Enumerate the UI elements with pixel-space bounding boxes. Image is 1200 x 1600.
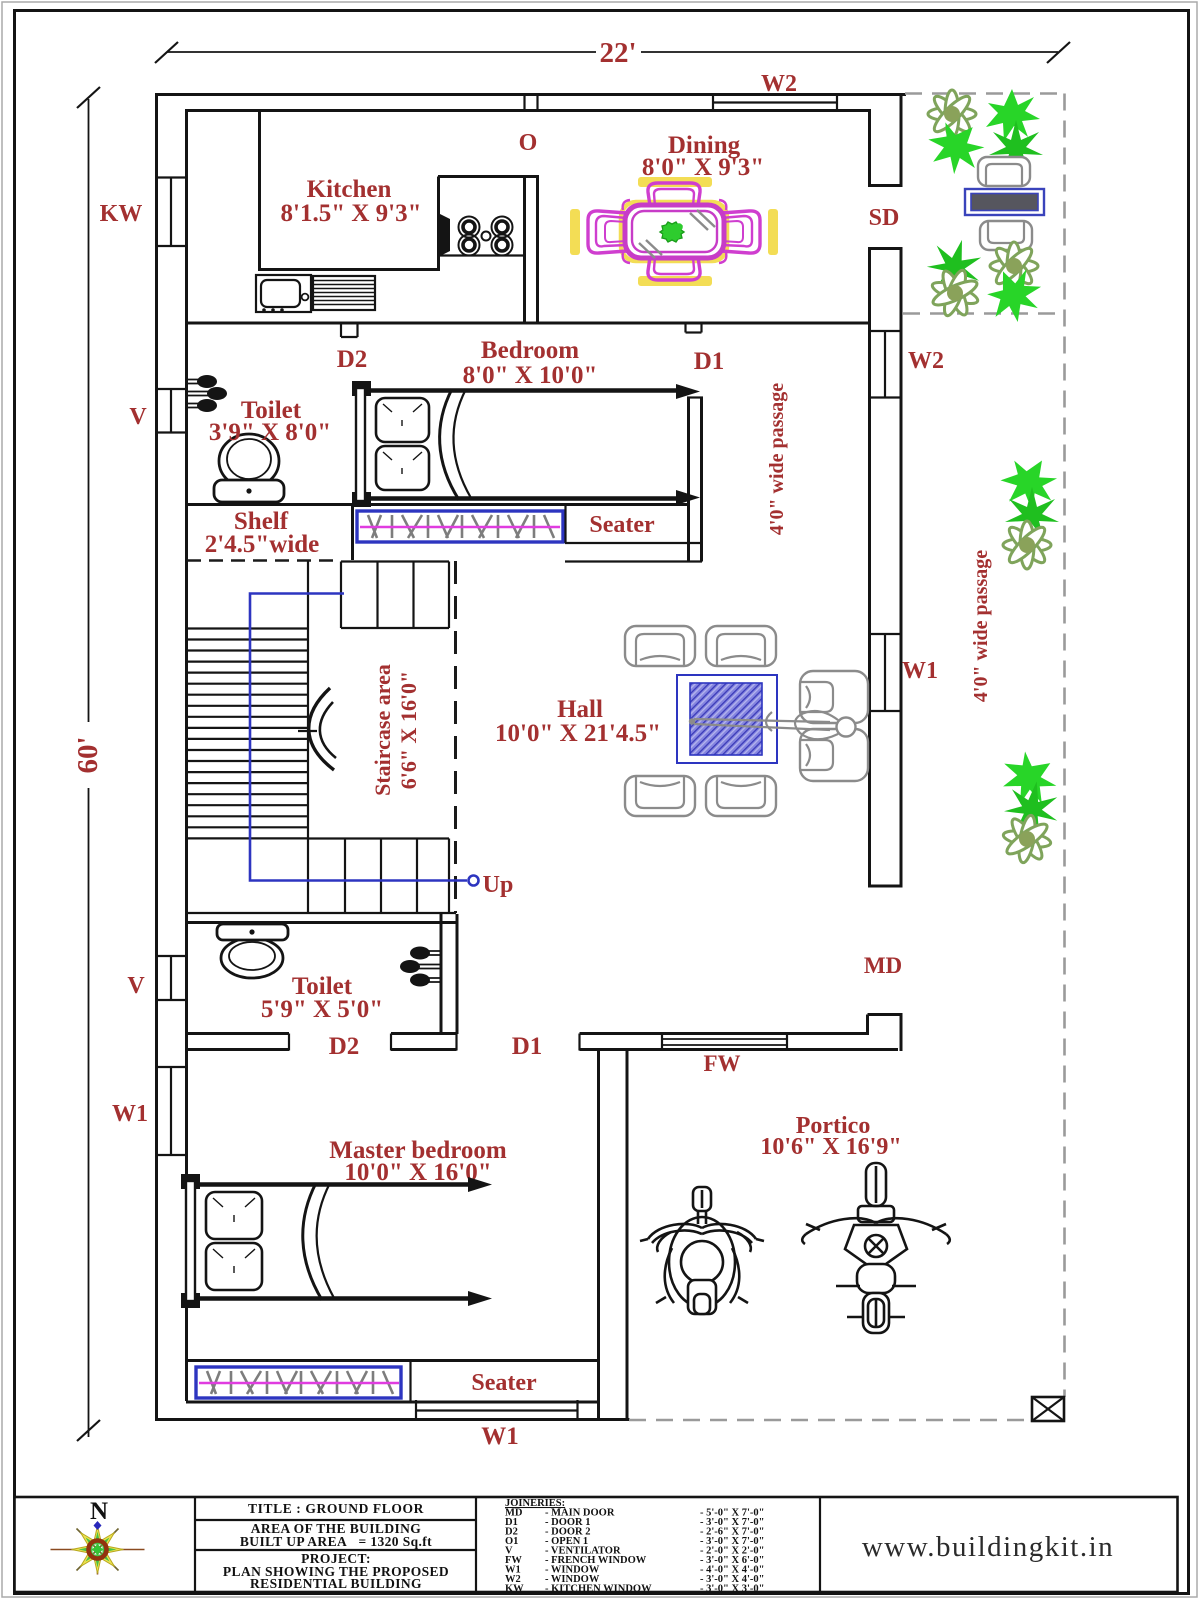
svg-text:W1: W1 [481, 1423, 519, 1450]
svg-text:8'0" X 9'3": 8'0" X 9'3" [642, 154, 764, 181]
svg-text:5'9" X 5'0": 5'9" X 5'0" [261, 996, 383, 1023]
svg-text:4'0" wide passage: 4'0" wide passage [970, 550, 992, 702]
svg-text:8'0" X 10'0": 8'0" X 10'0" [463, 362, 598, 389]
svg-text:Bedroom: Bedroom [481, 337, 579, 364]
svg-text:3'9" X 8'0": 3'9" X 8'0" [209, 419, 331, 446]
svg-text:FW: FW [703, 1051, 740, 1076]
svg-text:D1: D1 [512, 1033, 543, 1060]
svg-text:V: V [127, 973, 145, 999]
svg-text:- 3'-0" X 3'-0": - 3'-0" X 3'-0" [700, 1584, 764, 1595]
svg-text:Seater: Seater [589, 512, 655, 538]
svg-text:8'1.5" X 9'3": 8'1.5" X 9'3" [281, 200, 422, 227]
svg-text:D1: D1 [694, 348, 725, 375]
svg-text:Up: Up [483, 872, 514, 898]
svg-text:RESIDENTIAL BUILDING: RESIDENTIAL BUILDING [250, 1576, 422, 1591]
svg-text:10'0" X 21'4.5": 10'0" X 21'4.5" [495, 720, 661, 747]
svg-text:W1: W1 [112, 1101, 148, 1127]
svg-text:O: O [519, 130, 538, 156]
svg-text:Staircase area: Staircase area [370, 664, 395, 796]
svg-text:W2: W2 [761, 71, 797, 97]
svg-text:V: V [129, 404, 147, 430]
svg-text:BUILT UP AREA = 1320 Sq.ft: BUILT UP AREA = 1320 Sq.ft [240, 1534, 432, 1549]
svg-text:MD: MD [864, 953, 902, 978]
svg-text:W1: W1 [902, 658, 938, 684]
svg-text:W2: W2 [908, 348, 944, 374]
svg-text:22': 22' [599, 37, 636, 69]
svg-text:KW: KW [505, 1584, 524, 1595]
svg-text:D2: D2 [337, 346, 368, 373]
svg-text:Kitchen: Kitchen [307, 176, 392, 203]
svg-text:www.buildingkit.in: www.buildingkit.in [862, 1531, 1114, 1563]
svg-text:4'0" wide passage: 4'0" wide passage [766, 383, 788, 535]
svg-text:- KITCHEN WINDOW: - KITCHEN WINDOW [545, 1584, 652, 1595]
svg-text:Hall: Hall [557, 696, 603, 723]
svg-text:N: N [90, 1498, 108, 1525]
svg-text:2'4.5"wide: 2'4.5"wide [205, 531, 320, 558]
svg-text:6'6" X 16'0": 6'6" X 16'0" [396, 671, 421, 790]
svg-text:TITLE : GROUND FLOOR: TITLE : GROUND FLOOR [248, 1501, 424, 1516]
svg-text:10'6" X 16'9": 10'6" X 16'9" [760, 1134, 901, 1160]
svg-text:D2: D2 [329, 1033, 360, 1060]
svg-text:KW: KW [100, 201, 143, 227]
svg-text:60': 60' [72, 736, 104, 773]
svg-text:SD: SD [869, 205, 900, 231]
svg-text:Seater: Seater [471, 1370, 537, 1396]
